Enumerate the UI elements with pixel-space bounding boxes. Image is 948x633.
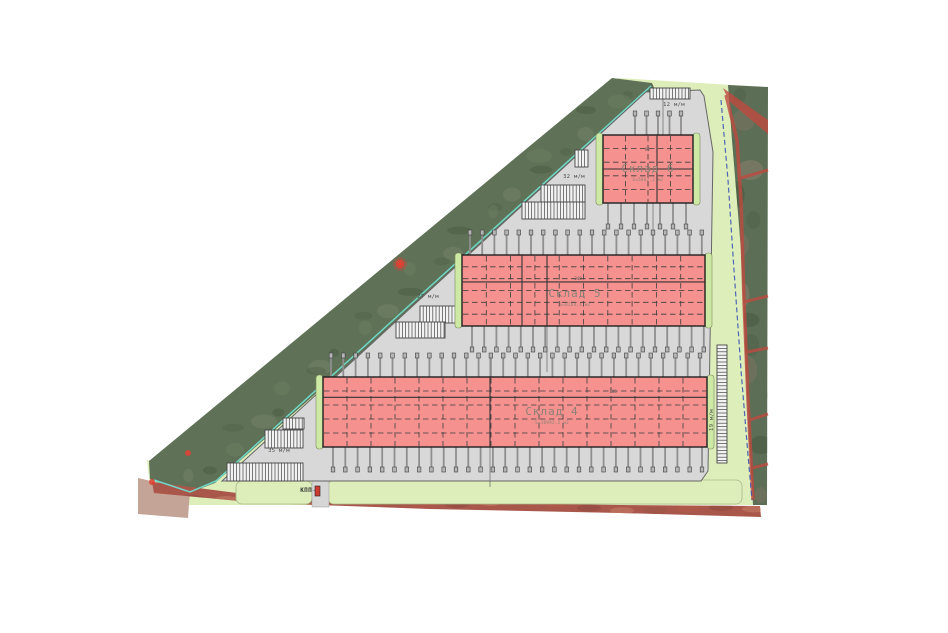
dock-foot	[465, 353, 469, 358]
parking-comb	[283, 418, 304, 429]
terrain-texture	[746, 211, 760, 229]
parking-capacity-label: 12 м/м	[663, 102, 685, 108]
road-texture	[577, 504, 601, 511]
dock-foot	[698, 353, 702, 358]
tree-texture	[274, 381, 290, 395]
dock-foot	[380, 467, 384, 472]
dock-foot	[563, 353, 567, 358]
parking-comb	[717, 345, 727, 463]
dock-foot	[331, 467, 335, 472]
dock-foot	[590, 467, 594, 472]
parking-comb	[265, 430, 303, 448]
dock-foot	[452, 353, 456, 358]
terrain-texture	[743, 262, 761, 278]
tree-texture	[503, 188, 521, 202]
dock-foot	[639, 467, 643, 472]
dock-foot	[637, 353, 641, 358]
dock-foot	[651, 467, 655, 472]
parking-comb	[541, 185, 585, 202]
dock-foot	[516, 467, 520, 472]
dock-foot	[454, 467, 458, 472]
building-label: Склад 5	[548, 287, 601, 300]
dock-foot	[442, 467, 446, 472]
dock-foot	[645, 224, 649, 229]
dock-foot	[665, 347, 669, 352]
parking-comb	[420, 306, 457, 323]
dock-foot	[528, 467, 532, 472]
dock-foot	[645, 111, 649, 116]
dock-foot	[519, 347, 523, 352]
dock-foot	[507, 347, 511, 352]
road-texture	[742, 505, 766, 512]
dock-foot	[505, 230, 509, 235]
dock-foot	[551, 353, 555, 358]
dock-foot	[661, 353, 665, 358]
building-end-cap	[596, 133, 603, 205]
dock-foot	[366, 353, 370, 358]
dock-foot	[684, 224, 688, 229]
tree-texture	[377, 304, 399, 318]
dock-foot	[614, 467, 618, 472]
dock-foot	[663, 467, 667, 472]
dock-foot	[368, 467, 372, 472]
site-plan: Склад 6S=5867,2 м296Склад 5S=8264,4 м224…	[0, 0, 948, 633]
dock-foot	[468, 230, 472, 235]
tree-texture	[488, 205, 498, 219]
dock-foot	[417, 467, 421, 472]
building-end-cap	[693, 133, 700, 205]
dock-foot	[440, 353, 444, 358]
dock-foot	[619, 224, 623, 229]
tree-texture	[203, 466, 217, 474]
tree-texture	[447, 227, 471, 235]
building-end-cap	[455, 253, 462, 328]
parking-comb	[575, 150, 588, 167]
dock-foot	[624, 353, 628, 358]
dock-foot	[495, 347, 499, 352]
dock-foot	[491, 467, 495, 472]
tree-texture	[560, 148, 572, 156]
dock-foot	[606, 224, 610, 229]
building-area-label: S=10992,2 м2	[535, 420, 569, 425]
dock-foot	[479, 467, 483, 472]
site-plan-canvas: Склад 6S=5867,2 м296Склад 5S=8264,4 м224…	[0, 0, 948, 633]
dock-foot	[663, 230, 667, 235]
terrain-texture	[755, 487, 767, 503]
building-dim-label: 106	[609, 389, 617, 394]
parking-comb	[522, 202, 585, 219]
parking-capacity-label: 27 м/м	[417, 294, 439, 300]
dock-foot	[590, 230, 594, 235]
dock-foot	[626, 467, 630, 472]
dock-foot	[543, 347, 547, 352]
dock-foot	[565, 467, 569, 472]
dock-foot	[342, 353, 346, 358]
dock-foot	[344, 467, 348, 472]
dock-foot	[467, 467, 471, 472]
tree-texture	[526, 149, 552, 163]
dock-foot	[578, 230, 582, 235]
tree-texture	[355, 312, 373, 320]
dock-foot	[489, 353, 493, 358]
dock-foot	[428, 353, 432, 358]
tree-texture	[434, 257, 450, 265]
dock-foot	[415, 353, 419, 358]
dock-foot	[702, 347, 706, 352]
dock-foot	[588, 353, 592, 358]
dock-foot	[493, 230, 497, 235]
dock-foot	[403, 353, 407, 358]
dock-foot	[514, 353, 518, 358]
building-area-label: S=5867,2 м2	[632, 177, 663, 182]
dock-foot	[356, 467, 360, 472]
dock-foot	[658, 224, 662, 229]
dock-foot	[538, 353, 542, 358]
parking-capacity-label: 35 м/м	[268, 448, 290, 454]
checkpoint-building	[315, 486, 320, 496]
dock-foot	[592, 347, 596, 352]
dock-foot	[577, 467, 581, 472]
parking-capacity-label: 19 м/м	[709, 409, 715, 431]
tree-texture	[226, 443, 244, 457]
dock-foot	[612, 353, 616, 358]
dock-foot	[615, 230, 619, 235]
dock-foot	[482, 347, 486, 352]
dock-foot	[679, 111, 683, 116]
building-end-cap	[705, 253, 712, 328]
dock-foot	[602, 230, 606, 235]
building-label: Склад 4	[525, 405, 578, 418]
tree-texture	[183, 469, 193, 483]
dock-foot	[517, 230, 521, 235]
dock-foot	[600, 353, 604, 358]
dock-foot	[671, 224, 675, 229]
dock-foot	[678, 347, 682, 352]
dock-foot	[641, 347, 645, 352]
tree-texture	[358, 321, 372, 335]
dock-foot	[580, 347, 584, 352]
dock-foot	[391, 353, 395, 358]
dock-foot	[627, 230, 631, 235]
tree-texture	[222, 424, 244, 432]
dock-foot	[553, 467, 557, 472]
dock-foot	[602, 467, 606, 472]
parking-comb	[396, 322, 445, 338]
dock-foot	[688, 467, 692, 472]
dock-foot	[501, 353, 505, 358]
terrain-texture	[748, 385, 768, 405]
parking-comb	[650, 88, 690, 99]
dock-foot	[700, 467, 704, 472]
dock-foot	[604, 347, 608, 352]
dock-foot	[470, 347, 474, 352]
dock-foot	[529, 230, 533, 235]
dock-foot	[477, 353, 481, 358]
dock-foot	[480, 230, 484, 235]
dock-foot	[629, 347, 633, 352]
road-texture	[610, 507, 634, 514]
dock-foot	[556, 347, 560, 352]
dock-foot	[430, 467, 434, 472]
dock-foot	[554, 230, 558, 235]
dock-foot	[540, 467, 544, 472]
dock-foot	[405, 467, 409, 472]
building-dim-label: 240	[574, 276, 582, 281]
dock-foot	[526, 353, 530, 358]
road-texture	[643, 507, 667, 514]
dock-foot	[393, 467, 397, 472]
tree-texture	[578, 127, 594, 141]
dock-foot	[531, 347, 535, 352]
dock-foot	[649, 353, 653, 358]
tree-texture	[272, 408, 284, 416]
dock-foot	[503, 467, 507, 472]
dock-foot	[632, 224, 636, 229]
tree-texture	[576, 106, 596, 114]
dock-foot	[378, 353, 382, 358]
dock-foot	[639, 230, 643, 235]
dock-foot	[633, 111, 637, 116]
dock-foot	[656, 111, 660, 116]
parking-capacity-label: 32 м/м	[563, 174, 585, 180]
dock-foot	[329, 353, 333, 358]
dock-foot	[686, 353, 690, 358]
terrain-texture	[749, 436, 773, 454]
dock-foot	[541, 230, 545, 235]
road-texture	[676, 505, 700, 512]
dock-foot	[668, 111, 672, 116]
dock-foot	[354, 353, 358, 358]
dock-foot	[676, 230, 680, 235]
tree-texture	[251, 414, 277, 428]
dock-foot	[690, 347, 694, 352]
dock-foot	[653, 347, 657, 352]
dock-foot	[568, 347, 572, 352]
building-end-cap	[316, 375, 323, 449]
building-area-label: S=8264,4 м2	[559, 302, 590, 307]
tree-texture	[306, 367, 326, 375]
dock-foot	[566, 230, 570, 235]
dock-foot	[575, 353, 579, 358]
dock-foot	[688, 230, 692, 235]
parking-comb	[227, 463, 303, 481]
entrance-road	[312, 479, 329, 507]
checkpoint-label: КПП	[300, 487, 312, 494]
building-dim-label: 96	[644, 147, 650, 152]
tree-texture	[530, 166, 552, 174]
dock-foot	[617, 347, 621, 352]
lawn-patch-right	[328, 480, 742, 504]
dock-foot	[651, 230, 655, 235]
dock-foot	[674, 353, 678, 358]
building-label: Склад 6	[621, 162, 674, 175]
dock-foot	[700, 230, 704, 235]
dock-foot	[676, 467, 680, 472]
